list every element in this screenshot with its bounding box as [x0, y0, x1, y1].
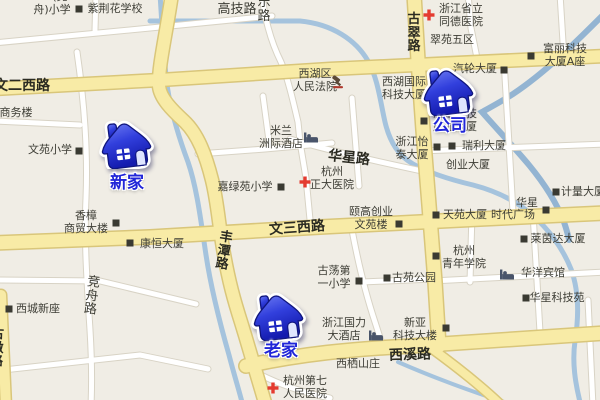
square-marker-icon	[528, 53, 535, 60]
square-marker-icon	[521, 236, 528, 243]
poi-label: 莱茵达大厦	[531, 233, 586, 246]
poi-label: 天苑大厦	[443, 209, 487, 222]
bed-icon	[304, 132, 318, 143]
poi-label-line: 西栖山庄	[336, 358, 380, 371]
poi-label-line: 颐高创业	[349, 206, 393, 219]
poi-label: 舟)小学	[33, 4, 70, 17]
poi-label: 时代广场	[491, 209, 535, 222]
poi-label-line: 米兰	[259, 125, 303, 138]
map-canvas[interactable]: (竞舟)小学紫荆花学校商务楼文苑小学香樟商贸大楼康恒大厦西城新座西湖区人民法院米…	[0, 0, 600, 400]
poi-label: 西栖山庄	[336, 358, 380, 371]
poi-label: 华星科技苑	[530, 292, 585, 305]
road-label: 文三西路	[269, 219, 326, 237]
road-label: 文二西路	[0, 79, 50, 93]
marker-new-home[interactable]	[98, 117, 154, 169]
red-cross-icon	[300, 177, 311, 188]
road-label: 高技路	[217, 3, 256, 17]
road-label: 西溪路	[389, 347, 431, 362]
poi-label-line: 商务楼	[0, 107, 33, 120]
square-marker-icon	[501, 67, 508, 74]
square-marker-icon	[127, 240, 134, 247]
poi-label-line: 舟)小学	[33, 4, 70, 17]
poi-label-line: 西城新座	[16, 303, 60, 316]
square-marker-icon	[113, 220, 120, 227]
poi-label-line: 时代广场	[491, 209, 535, 222]
house-icon	[98, 117, 154, 169]
poi-label-line: 浙江怡	[396, 136, 429, 149]
bed-icon	[500, 269, 514, 280]
marker-label-company: 公司	[433, 111, 467, 136]
river-west	[160, 0, 243, 400]
square-marker-icon	[76, 6, 83, 13]
square-marker-icon	[6, 306, 13, 313]
poi-label-line: 杭州	[442, 245, 486, 258]
poi-label-line: 洲际酒店	[259, 138, 303, 151]
poi-label: 古苑公园	[392, 272, 436, 285]
poi-label-line: 科技大楼	[393, 330, 437, 343]
red-cross-icon	[268, 383, 279, 394]
square-marker-icon	[523, 295, 530, 302]
poi-label-line: 文苑小学	[28, 144, 72, 157]
poi-label-line: 杭州	[310, 166, 354, 179]
poi-label: 富丽科技大厦A座	[543, 43, 587, 68]
poi-label: 浙江怡泰大厦	[396, 136, 429, 161]
poi-label: 新亚科技大楼	[393, 317, 437, 342]
square-marker-icon	[421, 118, 428, 125]
poi-label-line: 大酒店	[322, 330, 366, 343]
poi-label-line: 香樟	[64, 210, 108, 223]
square-marker-icon	[384, 275, 391, 282]
square-marker-icon	[396, 221, 403, 228]
marker-old-home[interactable]	[250, 289, 306, 341]
poi-label-line: 天苑大厦	[443, 209, 487, 222]
poi-label: 瑞利大厦	[462, 140, 506, 153]
poi-label-line: 正大医院	[310, 179, 354, 192]
poi-label: 华星	[516, 197, 538, 210]
poi-label-line: 嘉绿苑小学	[218, 181, 273, 194]
square-marker-icon	[356, 278, 363, 285]
poi-label-line: 浙江省立	[439, 3, 483, 16]
poi-label-line: 杭州第七	[283, 375, 327, 388]
poi-label: 颐高创业文苑楼	[349, 206, 393, 231]
poi-label-line: 商贸大楼	[64, 223, 108, 236]
poi-label-line: 泰大厦	[396, 149, 429, 162]
poi-label-line: 华星	[516, 197, 538, 210]
poi-label: 米兰洲际酒店	[259, 125, 303, 150]
poi-label: 香樟商贸大楼	[64, 210, 108, 235]
square-marker-icon	[434, 144, 441, 151]
road-label: 乐路	[257, 0, 271, 23]
poi-label-line: 翠苑五区	[430, 34, 474, 47]
square-marker-icon	[278, 184, 285, 191]
poi-label-line: 同德医院	[439, 16, 483, 29]
poi-label-line: 计量大厦	[561, 186, 600, 199]
poi-label-line: 古荡第	[318, 265, 351, 278]
poi-label: 计量大厦	[561, 186, 600, 199]
poi-label: 浙江国力大酒店	[322, 317, 366, 342]
poi-label-line: 华洋宾馆	[521, 267, 565, 280]
poi-label-line: 康恒大厦	[140, 238, 184, 251]
poi-label-line: 紫荆花学校	[88, 3, 143, 16]
poi-label-line: 大厦A座	[543, 56, 587, 69]
poi-label-line: 浙江国力	[322, 317, 366, 330]
marker-label-old-home: 老家	[264, 336, 298, 361]
poi-label-line: 华星科技苑	[530, 292, 585, 305]
poi-label-line: 富丽科技	[543, 43, 587, 56]
square-marker-icon	[433, 212, 440, 219]
poi-label-line: 一小学	[318, 278, 351, 291]
poi-label-line: 青年学院	[442, 258, 486, 271]
marker-company[interactable]	[420, 64, 476, 116]
house-icon	[420, 64, 476, 116]
square-marker-icon	[543, 207, 550, 214]
poi-label: 翠苑五区	[430, 34, 474, 47]
poi-label: 古荡第一小学	[318, 265, 351, 290]
poi-label: 浙江省立同德医院	[439, 3, 483, 28]
poi-label-line: 古苑公园	[392, 272, 436, 285]
square-marker-icon	[449, 143, 456, 150]
poi-label-line: 文苑楼	[349, 219, 393, 232]
bed-icon	[369, 330, 383, 341]
marker-label-new-home: 新家	[110, 168, 144, 193]
poi-label: 西城新座	[16, 303, 60, 316]
poi-label: 嘉绿苑小学	[218, 181, 273, 194]
square-marker-icon	[433, 253, 440, 260]
poi-label: 杭州第七人民医院	[283, 375, 327, 400]
poi-label-line: 瑞利大厦	[462, 140, 506, 153]
poi-label: 杭州正大医院	[310, 166, 354, 191]
poi-label: 创业大厦	[446, 159, 490, 172]
poi-label-line: 创业大厦	[446, 159, 490, 172]
square-marker-icon	[553, 189, 560, 196]
gavel-icon	[331, 76, 345, 89]
house-icon	[250, 289, 306, 341]
poi-label: 紫荆花学校	[88, 3, 143, 16]
poi-label: 商务楼	[0, 107, 33, 120]
poi-label-line: 新亚	[393, 317, 437, 330]
square-marker-icon	[76, 148, 83, 155]
red-cross-icon	[424, 10, 435, 21]
poi-label: 文苑小学	[28, 144, 72, 157]
poi-label-line: 人民医院	[283, 388, 327, 400]
road-branch-se	[431, 348, 502, 400]
road-label: 古翠路	[407, 13, 421, 54]
poi-label-line: 莱茵达大厦	[531, 233, 586, 246]
poi-label: 杭州青年学院	[442, 245, 486, 270]
poi-label: 华洋宾馆	[521, 267, 565, 280]
square-marker-icon	[443, 325, 450, 332]
poi-label: 康恒大厦	[140, 238, 184, 251]
